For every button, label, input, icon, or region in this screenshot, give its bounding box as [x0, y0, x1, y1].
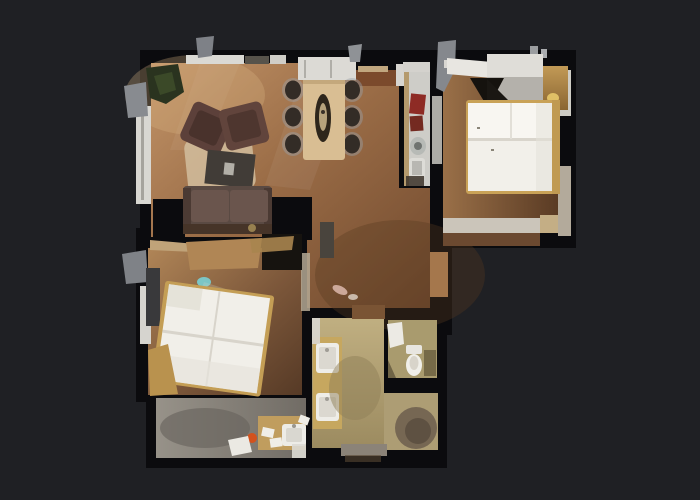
kitchen-red-item-2: [410, 116, 424, 132]
kitchen-pot-inner: [414, 142, 422, 150]
bath-doorway-floor: [352, 305, 385, 319]
entry-step: [341, 444, 387, 456]
scan-artifact-left-2: [122, 250, 148, 284]
kitchen-sink-basin: [412, 161, 422, 175]
hall-scrap-white: [348, 294, 358, 300]
table-centerpiece-dot: [321, 110, 325, 114]
sill-frame-1: [304, 60, 306, 78]
scan-artifact-top-2: [348, 44, 362, 62]
toilet-bowl-inner: [410, 356, 419, 370]
office-white-sliver: [292, 444, 306, 458]
scan-artifact-top-1: [196, 36, 214, 58]
wall-chunk-sofa-right: [271, 197, 312, 240]
sofa-item: [248, 224, 256, 232]
bedroom1-bottom-wedge: [540, 215, 558, 233]
top-wall-window-2: [270, 55, 286, 64]
bath-sink-1-faucet: [325, 348, 329, 352]
floorplan-3d-view[interactable]: [0, 0, 700, 500]
bed1-pillow-split: [510, 103, 512, 139]
bed2-shade-top: [166, 284, 203, 311]
kitchen-red-item-1: [409, 93, 426, 114]
table-centerpiece-swirl: [319, 103, 327, 131]
toilet-room-shade-1: [424, 350, 436, 376]
top-wall-brown-edge: [358, 66, 388, 72]
living-window-frame: [141, 110, 144, 200]
wall-chunk-sofa-left: [153, 199, 185, 238]
bath-sink-2-faucet: [325, 397, 329, 401]
bedroom2-door-band: [301, 253, 310, 311]
dining-chair-5: [344, 108, 360, 127]
bed1-duvet-shade: [536, 103, 554, 191]
kitchen-counter-top-cap: [403, 62, 430, 72]
bedroom1-bottom-wall-band: [443, 218, 548, 233]
kitchen-dark-end: [406, 176, 424, 186]
top-wall-window-1: [186, 55, 244, 64]
top-wall-dark-seg: [245, 56, 269, 64]
toilet-sink: [387, 322, 404, 348]
dining-chair-6: [344, 135, 360, 154]
dining-chair-4: [344, 81, 360, 100]
dollhouse-scene-svg: [0, 0, 700, 500]
wardrobe-slab-top: [487, 54, 543, 77]
bedroom1-door-nook: [430, 252, 448, 297]
sill-frame-2: [330, 60, 332, 78]
corridor-door-leaf: [312, 318, 320, 344]
dining-chair-1: [285, 81, 301, 100]
sofa-cushion-right: [230, 190, 268, 222]
kitchen-counter-wood-edge: [404, 70, 409, 186]
toilet-tank: [406, 345, 422, 354]
entry-step-fringe: [345, 455, 381, 462]
top-wall-brown-seg: [356, 70, 400, 86]
bed1-frame-right: [552, 100, 560, 194]
sofa-cushion-left: [191, 190, 229, 222]
sofa-backrest: [183, 224, 272, 234]
office-paper-2: [270, 437, 283, 448]
dining-table-edge: [303, 80, 345, 84]
bed1-speck-1: [477, 127, 480, 129]
shower-shadow-inner: [405, 418, 431, 444]
bedroom1-door-leaf: [432, 96, 442, 164]
coffee-table-paper: [223, 162, 234, 175]
scan-artifact-left-1: [124, 82, 148, 118]
hall-console: [320, 222, 334, 258]
office-vanity-faucet: [292, 424, 296, 428]
corridor-shadow: [329, 356, 381, 420]
bedroom1-floor-wedge: [443, 233, 540, 246]
bedroom2-wall-panel: [146, 268, 160, 326]
office-vanity-basin: [286, 428, 302, 442]
dining-chair-2: [285, 108, 301, 127]
bed1-speck-2: [491, 149, 494, 151]
top-wall-window-sill: [298, 57, 356, 80]
dining-chair-3: [285, 135, 301, 154]
